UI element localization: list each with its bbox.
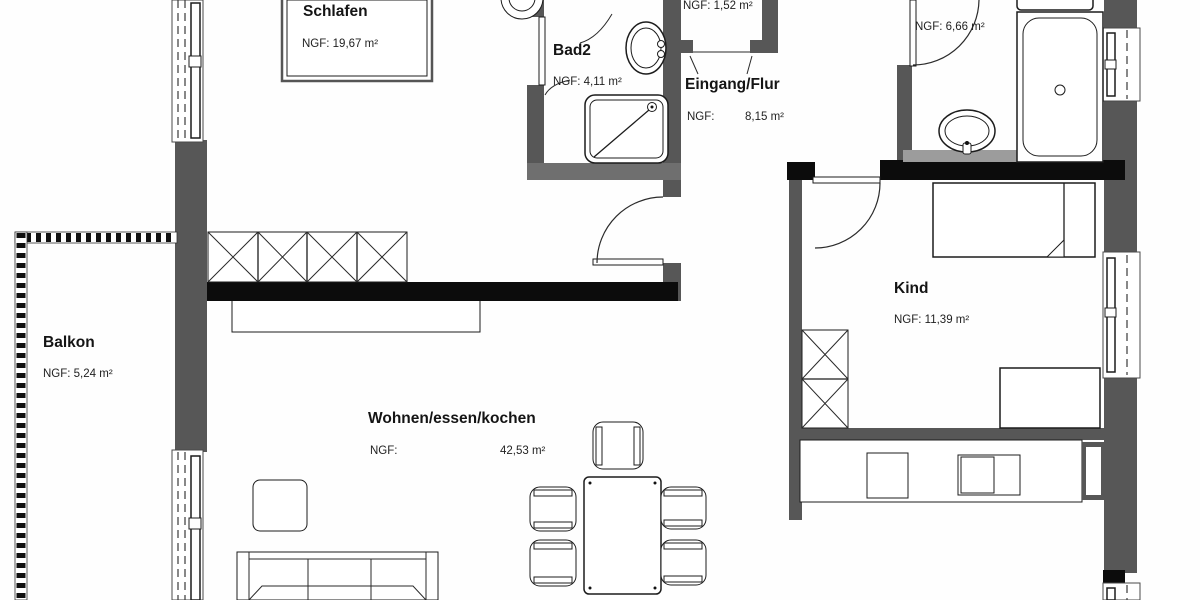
- label-leader: [747, 56, 752, 74]
- window-right-bottom: [1103, 583, 1140, 600]
- room-area-schlafen: NGF: 19,67 m²: [302, 38, 378, 50]
- room-label-wohnen: Wohnen/essen/kochen: [368, 410, 536, 427]
- floor-plan: Schlafen NGF: 19,67 m² Bad2 NGF: 4,11 m²…: [0, 0, 1200, 600]
- dining-chair: [661, 487, 706, 529]
- bed-kind: [933, 183, 1095, 257]
- window-right-top: [1103, 28, 1140, 101]
- bathtub: [1017, 12, 1103, 162]
- room-label-bad2: Bad2: [553, 42, 591, 59]
- wall-segment: [681, 40, 693, 53]
- window-right-middle: [1103, 252, 1140, 378]
- door-kind: [813, 177, 880, 248]
- room-area-abstellraum: NGF: 1,52 m²: [683, 0, 753, 12]
- sofa: [237, 552, 438, 600]
- shower: [585, 95, 668, 163]
- wall-segment: [1104, 377, 1137, 573]
- label-leader: [580, 14, 612, 43]
- kitchen-counter: [800, 440, 1082, 502]
- window-left-bottom: [172, 450, 203, 600]
- door-schlafen: [593, 197, 663, 265]
- kitchen-sink: [867, 453, 908, 498]
- wardrobe-schlafen: [208, 232, 407, 282]
- wall-segment: [1104, 0, 1137, 28]
- coffee-table: [253, 480, 307, 531]
- room-area-bad2: NGF: 4,11 m²: [553, 76, 622, 88]
- wall-segment: [750, 40, 778, 53]
- room-label-eingang-flur: Eingang/Flur: [685, 76, 780, 93]
- room-label-schlafen: Schlafen: [303, 3, 368, 20]
- room-area-eingang-value: 8,15 m²: [745, 111, 784, 123]
- room-area-balkon: NGF: 5,24 m²: [43, 368, 113, 380]
- room-area-kind: NGF: 11,39 m²: [894, 314, 969, 326]
- wall-segment: [787, 162, 815, 180]
- dining-table: [584, 477, 661, 594]
- wall-segment: [207, 282, 678, 301]
- door-bad2: [539, 17, 545, 85]
- wardrobe-kind: [802, 330, 848, 428]
- wall-segment: [175, 140, 207, 452]
- room-area-wohnen-ngf: NGF:: [370, 445, 397, 457]
- wall-segment: [880, 160, 1125, 180]
- washing-machine: [1017, 0, 1093, 10]
- room-area-wohnen-value: 42,53 m²: [500, 445, 546, 457]
- tall-cabinet: [1082, 442, 1105, 500]
- room-label-kind: Kind: [894, 280, 928, 297]
- cooktop: [958, 455, 1020, 495]
- sink-bad2: [626, 22, 666, 74]
- dining-chair: [593, 422, 643, 469]
- room-area-bad: NGF: 6,66 m²: [915, 21, 985, 33]
- wall-segment: [800, 428, 1105, 440]
- label-leader: [690, 56, 698, 74]
- floor-plan-canvas: Schlafen NGF: 19,67 m² Bad2 NGF: 4,11 m²…: [0, 0, 1200, 600]
- dining-chair: [661, 540, 706, 585]
- sink-bad: [939, 110, 995, 154]
- dining-chair: [530, 487, 576, 531]
- room-label-balkon: Balkon: [43, 334, 95, 351]
- sideboard: [232, 296, 480, 332]
- door-bad: [910, 0, 979, 66]
- room-area-eingang-ngf: NGF:: [687, 111, 714, 123]
- window-left-top: [172, 0, 203, 142]
- wall-segment: [897, 65, 912, 162]
- wall-segment: [527, 163, 681, 180]
- desk-kind: [1000, 368, 1100, 428]
- dining-chair: [530, 540, 576, 586]
- wall-segment: [1103, 570, 1125, 584]
